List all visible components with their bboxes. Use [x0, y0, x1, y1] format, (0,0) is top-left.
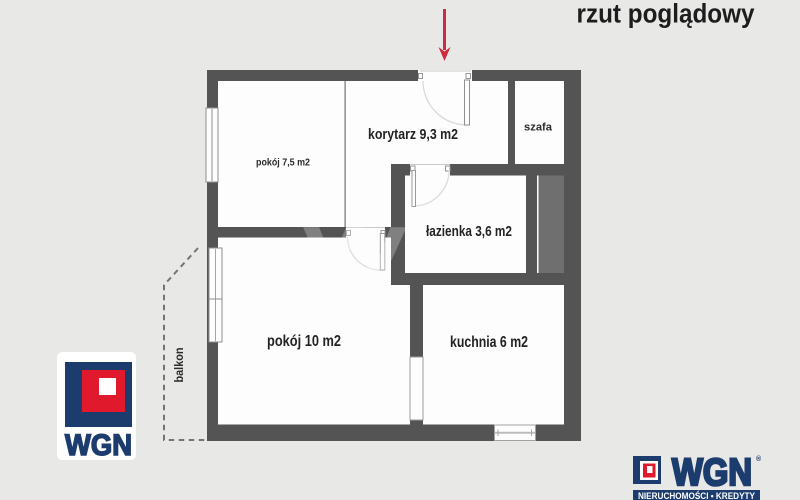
svg-text:®: ® — [756, 455, 762, 463]
svg-text:korytarz 9,3 m2: korytarz 9,3 m2 — [368, 126, 458, 143]
svg-text:pokój 7,5 m2: pokój 7,5 m2 — [256, 157, 310, 169]
svg-text:kuchnia 6 m2: kuchnia 6 m2 — [450, 334, 528, 351]
svg-text:WGN: WGN — [672, 452, 752, 494]
svg-text:NIERUCHOMOŚCI • KREDYTY: NIERUCHOMOŚCI • KREDYTY — [638, 490, 755, 500]
svg-text:łazienka 3,6 m2: łazienka 3,6 m2 — [426, 223, 512, 240]
svg-text:W: W — [303, 214, 408, 284]
svg-text:pokój 10 m2: pokój 10 m2 — [267, 333, 341, 350]
svg-text:szafa: szafa — [524, 122, 553, 134]
svg-text:balkon: balkon — [174, 348, 186, 383]
svg-text:rzut poglądowy: rzut poglądowy — [577, 0, 755, 29]
svg-text:WGN: WGN — [65, 429, 132, 462]
